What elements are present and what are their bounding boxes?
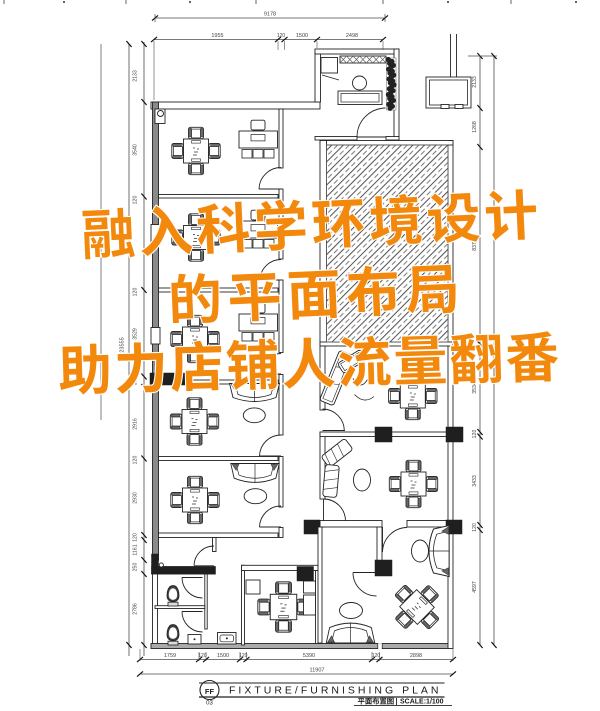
svg-text:2133: 2133 xyxy=(472,76,478,88)
svg-text:1268: 1268 xyxy=(472,121,478,133)
svg-text:120: 120 xyxy=(198,653,207,659)
svg-text:23555: 23555 xyxy=(120,337,126,352)
svg-text:2498: 2498 xyxy=(346,33,358,39)
svg-text:1161: 1161 xyxy=(133,544,139,555)
svg-text:FIXTURE/FURNISHING PLAN: FIXTURE/FURNISHING PLAN xyxy=(229,685,442,697)
svg-text:9178: 9178 xyxy=(264,12,276,18)
svg-text:2898: 2898 xyxy=(410,653,422,659)
svg-text:3433: 3433 xyxy=(472,475,478,487)
svg-text:120: 120 xyxy=(133,196,139,205)
svg-text:2786: 2786 xyxy=(133,603,139,615)
svg-text:5390: 5390 xyxy=(303,653,315,659)
svg-text:120: 120 xyxy=(133,456,139,465)
svg-text:120: 120 xyxy=(133,533,139,542)
svg-text:03: 03 xyxy=(206,701,213,707)
svg-text:1759: 1759 xyxy=(164,653,176,659)
svg-text:11907: 11907 xyxy=(310,668,325,674)
svg-text:3540: 3540 xyxy=(133,144,139,156)
svg-text:1955: 1955 xyxy=(211,33,223,39)
svg-text:1500: 1500 xyxy=(296,33,308,39)
svg-text:FF: FF xyxy=(205,687,215,696)
svg-text:120: 120 xyxy=(472,430,478,439)
svg-text:250: 250 xyxy=(133,563,139,572)
svg-text:120: 120 xyxy=(472,523,478,532)
svg-text:SCALE:1/100: SCALE:1/100 xyxy=(400,699,444,706)
svg-text:120: 120 xyxy=(277,33,286,39)
svg-text:120: 120 xyxy=(372,653,381,659)
svg-text:2916: 2916 xyxy=(133,418,139,430)
svg-text:2930: 2930 xyxy=(133,492,139,504)
svg-text:2133: 2133 xyxy=(133,70,139,82)
svg-text:1500: 1500 xyxy=(217,653,229,659)
svg-text:4597: 4597 xyxy=(472,581,478,593)
svg-text:120: 120 xyxy=(133,288,139,297)
svg-text:3529: 3529 xyxy=(133,328,139,340)
